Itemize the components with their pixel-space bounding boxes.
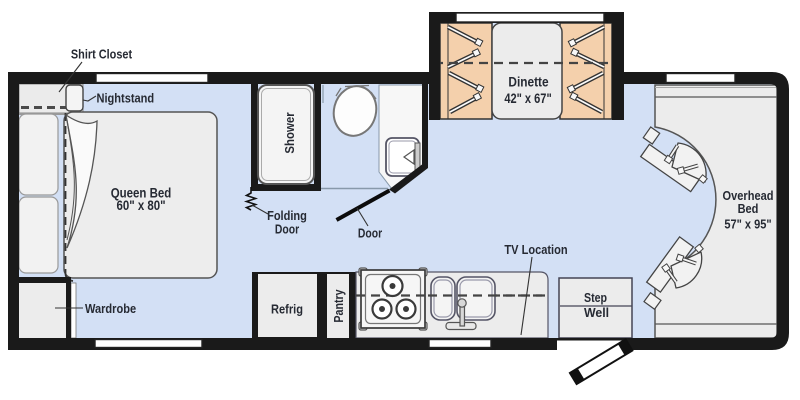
svg-text:Refrig: Refrig bbox=[271, 302, 303, 317]
svg-text:Step: Step bbox=[584, 290, 607, 305]
svg-text:Folding: Folding bbox=[267, 208, 307, 223]
svg-text:Pantry: Pantry bbox=[331, 289, 346, 322]
svg-text:Door: Door bbox=[275, 222, 300, 236]
svg-text:57" x 95": 57" x 95" bbox=[724, 217, 771, 232]
svg-text:Shower: Shower bbox=[282, 112, 297, 154]
svg-text:TV Location: TV Location bbox=[504, 242, 567, 257]
svg-text:Wardrobe: Wardrobe bbox=[85, 301, 136, 316]
svg-text:Shirt Closet: Shirt Closet bbox=[71, 47, 132, 62]
svg-text:60" x 80": 60" x 80" bbox=[116, 198, 165, 213]
svg-text:Dinette: Dinette bbox=[508, 74, 548, 90]
svg-text:Door: Door bbox=[358, 226, 383, 240]
svg-text:Bed: Bed bbox=[738, 201, 759, 216]
svg-text:Nightstand: Nightstand bbox=[97, 91, 155, 106]
svg-text:42" x 67": 42" x 67" bbox=[504, 91, 552, 106]
svg-text:Well: Well bbox=[584, 306, 609, 320]
